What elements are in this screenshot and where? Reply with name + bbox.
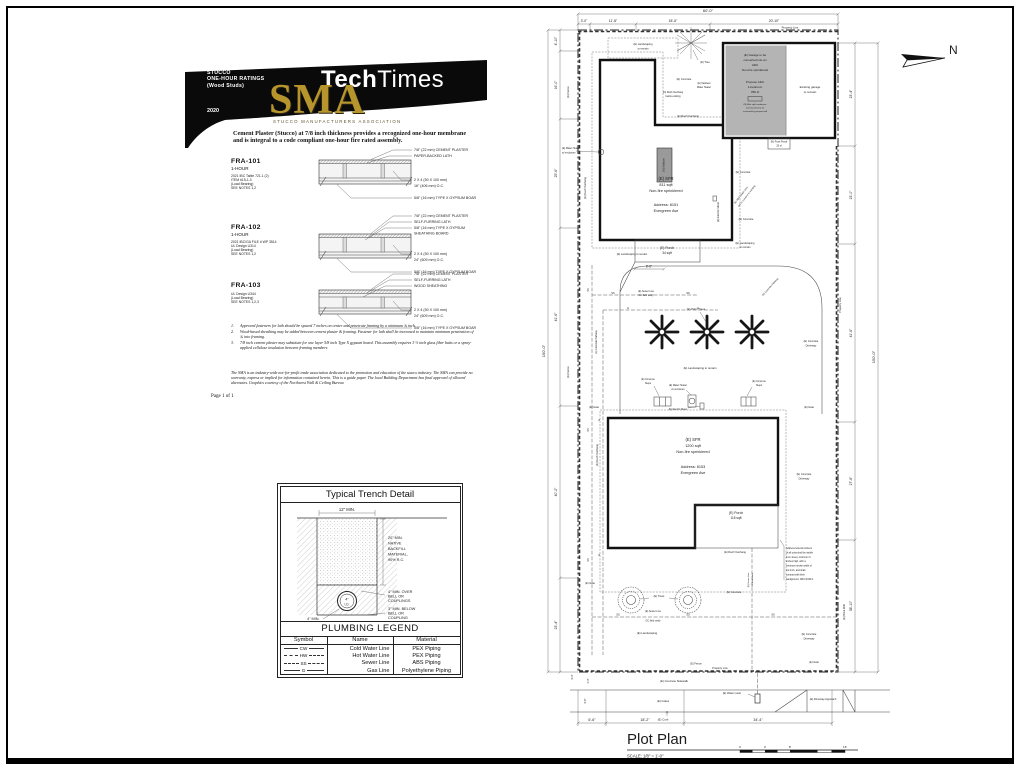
address-note-line: contrast with their — [786, 573, 805, 576]
legend-row-hot-water: HW Hot Water Line PEX Piping — [281, 652, 460, 659]
callout: 7/8" (22 mm) CEMENT PLASTER — [414, 148, 469, 152]
ss-mark: SS — [771, 613, 775, 617]
line-segment — [284, 655, 299, 656]
water-heater-mid-2: w/ enclosure — [671, 388, 685, 391]
stud — [343, 238, 347, 253]
fra-ref: SEE NOTES 1,2,3 — [231, 300, 289, 304]
native-soil-left — [297, 518, 317, 615]
dim-right-1: 23'-4" — [849, 89, 853, 98]
fra-refs: 2021 IBC Table 721.1 (2) ITEM #15-1.3 (L… — [231, 174, 289, 191]
kicker-line2: ONE-HOUR RATINGS — [207, 76, 264, 82]
house-8151-address-1: Address: 8151 — [654, 203, 679, 207]
concrete-label-right-2: (E) Concrete — [739, 217, 754, 221]
palm-trunk-1 — [659, 329, 664, 334]
dim-right-overall: 150'-0" — [871, 350, 876, 363]
legend-header-name: Name — [328, 637, 394, 644]
trench-detail-panel: Typical Trench Detail 4" I.D. 12" MIN. 2… — [277, 483, 463, 678]
existing-garage-label-2: to remain — [804, 90, 817, 94]
address-note-bracket — [780, 540, 784, 580]
intro-line1: Cement Plaster (Stucco) at 7/8 inch thic… — [233, 130, 473, 137]
callout: 7/8" (22 mm) CEMENT PLASTER — [414, 214, 469, 218]
ss-mark: SS — [586, 288, 590, 292]
address-note-line: of all units shall be visible — [786, 551, 814, 554]
fra-rating: 1-HOUR — [231, 232, 289, 237]
note-number: 3. — [231, 341, 240, 350]
house-8153-use: (E) SFR — [685, 437, 700, 442]
plumbing-legend-title: PLUMBING LEGEND — [281, 621, 460, 637]
concrete-driveway-3b: Driveway — [804, 637, 815, 641]
landscaping-label-1: (E) Landscaping — [736, 241, 755, 245]
dim-left-6: 23'-4" — [554, 620, 558, 629]
sewer-note-right-2: GC field verify — [751, 572, 754, 587]
landscaping-line-label-mid: (E) Landscaping to remain — [684, 366, 717, 370]
property-line-label-bottom: Property Line — [712, 666, 728, 670]
backfill-label: BACKFILL — [388, 547, 406, 551]
existing-garage-label-1: Existing garage — [800, 85, 821, 89]
hot-water-line-symbol: HW — [284, 653, 324, 658]
callout: 2 X 4 (50 X 100 mm) — [414, 178, 447, 182]
sewer-line-symbol: SS — [284, 661, 324, 666]
plot-scale-label: SCALE: 1/8" = 1'-0" — [627, 754, 664, 759]
name-cell: Gas Line — [328, 667, 394, 674]
over-bell-label: COUPLINGS — [388, 599, 411, 603]
plot-plan-drawing: 60'-0" 3'-0" 11'-8" 18'-6" 20'-10" 150'-… — [528, 0, 960, 770]
roof-overhang-left: (E) Roof Overhang — [583, 177, 587, 199]
sewer-note-1: (E) Sewer Line — [638, 290, 654, 293]
fra-ref: SEE NOTES 1,2 — [231, 186, 289, 190]
callout: SHEATHING BOARD — [414, 232, 449, 236]
stucco-layer — [319, 234, 411, 238]
dim-left-5: 40'-2" — [554, 487, 558, 496]
roof-overhang-label: (E) Roof Overhang — [677, 114, 699, 118]
gas-mark: G — [627, 306, 629, 310]
mini-split-note-1: (N) Mini split condenser — [744, 103, 767, 106]
line-segment — [309, 655, 324, 656]
water-meter-label: (E) Water meter — [723, 691, 741, 695]
steps-label-right-1: (E) Concrete — [752, 380, 766, 383]
concrete-pathway-diag: (E) Concrete Pathway — [762, 277, 780, 297]
dim-right-4: 27'-6" — [849, 476, 853, 485]
line-segment — [284, 648, 299, 649]
fra-rating: 1-HOUR — [231, 166, 289, 171]
trench-diagram: 4" I.D. 12" MIN. 20" MIN. NATIVE BACKFIL… — [281, 503, 463, 621]
fra-ref: SEE NOTES 1,2 — [231, 252, 289, 256]
roof-overhang-left-8153: (E) Roof Overhang — [595, 444, 599, 466]
line-segment — [307, 670, 324, 671]
house-8151-area: 811 sqft — [659, 183, 673, 187]
fra-103-info: FRA-103 UL Design U344 (Load Bearing) SE… — [231, 282, 289, 305]
dim-left-1: 4'-10" — [554, 36, 558, 45]
concrete-steps-left-symbol — [654, 397, 671, 406]
dim-grass-width: 5'-6" — [584, 698, 587, 703]
dim-left-4: 41'-6" — [554, 312, 558, 321]
backfill-label: 90% R.C. — [388, 558, 404, 562]
water-heater-label-2: w/ enclosure — [562, 152, 576, 155]
sewer-note-bottom-1: (E) Sewer Line — [645, 610, 661, 613]
concrete-bottom-label: (E) Concrete — [727, 590, 742, 594]
line-segment — [284, 663, 299, 664]
callout: 5/8" (16 mm) TYPE X GYPSUM BOARD — [414, 196, 476, 200]
scale-tick-4: 4' — [764, 745, 767, 749]
ss-mark: SS — [686, 613, 690, 617]
dim-top-4: 20'-10" — [769, 19, 780, 23]
over-bell-label: 4" MIN. OVER — [388, 590, 413, 594]
dim-top-3: 18'-6" — [669, 19, 678, 23]
scale-bar-block — [832, 750, 846, 753]
assembly-fra-101: FRA-101 1-HOUR 2021 IBC Table 721.1 (2) … — [231, 144, 479, 208]
concrete-driveway-1a: (E) Concrete — [804, 339, 819, 343]
callout: 24" (609 mm) O.C. — [414, 258, 444, 262]
electric-meter-mid: (E) Electric Meter — [669, 408, 688, 411]
address-note-line: Address letters/numbers — [786, 547, 813, 550]
note-text: 7/8 inch cement plaster may substitute f… — [240, 341, 475, 350]
kicker-line3: (Wood Studs) — [207, 83, 264, 89]
property-line-label-right: Property Line — [838, 297, 842, 313]
material-cell: PEX Piping — [394, 652, 460, 659]
ss-mark: SS — [686, 291, 690, 295]
ss-mark: SS — [586, 558, 590, 562]
symbol-label: G — [302, 668, 306, 673]
porch-8153-label: (E) Porch — [729, 511, 743, 515]
below-bell-label: BELL OR — [388, 611, 404, 615]
name-cell: Hot Water Line — [328, 652, 394, 659]
backfill-zone — [317, 518, 377, 585]
gate-label-mid-right: (E) Gate — [804, 405, 814, 409]
gas-line-symbol: G — [284, 668, 324, 673]
water-meter-leader — [748, 694, 755, 697]
name-cell: Sewer Line — [328, 660, 394, 667]
scale-bar-block — [790, 750, 818, 753]
trench-inner-frame: Typical Trench Detail 4" I.D. 12" MIN. 2… — [280, 486, 461, 676]
backfill-label: NATIVE — [388, 541, 402, 545]
pipe-id-label: I.D. — [344, 602, 349, 606]
backfill-label: MATERIAL, — [388, 552, 408, 556]
dim-right-2: 23'-0" — [849, 190, 853, 199]
line-segment — [308, 663, 323, 664]
dim-top-overall: 60'-0" — [703, 8, 714, 13]
note-text: Wood-based sheathing may be added betwee… — [240, 330, 475, 339]
intro-line2: and is integral to a code compliant one-… — [233, 137, 473, 144]
north-arrow: N — [893, 34, 963, 76]
gate-label-mid-left: (E) Gate — [589, 405, 599, 409]
new-overhang-label-1: (N) Roof Overhang — [663, 91, 684, 94]
fence-label-left-upper: (E) Fence — [566, 86, 570, 98]
fence-label-bottom: (E) Fence — [690, 662, 702, 666]
note-number: 2. — [231, 330, 240, 339]
scale-tick-8: 8' — [789, 745, 792, 749]
house-8153-address-1: Address: 8153 — [681, 465, 706, 469]
sma-logo-subtitle: STUCCO MANUFACTURERS ASSOCIATION — [273, 119, 401, 124]
adu-propose-3: 350 sf — [751, 90, 759, 94]
name-cell: Cold Water Line — [328, 645, 394, 652]
legend-header-symbol: Symbol — [281, 637, 328, 644]
note-2: 2.Wood-based sheathing may be added betw… — [231, 330, 475, 339]
plot-street: (E) Concrete Sidewalk (E) Grass (E) Curb… — [570, 679, 890, 722]
symbol-label: SS — [300, 661, 306, 666]
concrete-driveway-2b: Driveway — [799, 477, 810, 481]
stucco-layer — [319, 290, 411, 294]
house-8153-sprinkler: Non-fire sprinklered — [676, 450, 709, 454]
steps-treads — [660, 397, 666, 406]
note-3: 3.7/8 inch cement plaster may substitute… — [231, 341, 475, 350]
trees-label: (E) Trees — [654, 594, 665, 598]
symbol-cell: G — [281, 667, 328, 674]
adu-propose-2: 1-bedroom — [748, 85, 763, 89]
house-8153-address-2: Evergreen Ave — [681, 471, 706, 475]
address-note-line: inches high, with a — [786, 560, 806, 563]
sma-disclaimer: The SMA is an industry-wide not-for-prof… — [231, 370, 475, 385]
plot-garage-adu: (E) Garage to be converted into an ADU N… — [723, 43, 835, 149]
new-overhang-label-2: below existing — [665, 95, 681, 98]
legend-row-sewer: SS Sewer Line ABS Piping — [281, 660, 460, 667]
porch-8153-area: 115 sqft — [730, 516, 741, 520]
concrete-driveway-2a: (E) Concrete — [797, 472, 812, 476]
property-line-label-top: Property Line — [782, 26, 799, 30]
round-tree-1 — [618, 587, 644, 613]
palm-leader — [700, 312, 706, 322]
dim-left-overall: 150'-0" — [541, 344, 546, 357]
adu-note-3: ADU — [752, 63, 758, 67]
scale-bar-block — [740, 750, 753, 753]
gas-mark: G — [597, 419, 601, 421]
banner-kicker: STUCCO ONE-HOUR RATINGS (Wood Studs) — [207, 70, 264, 89]
note-1: 1.Approved fasteners for lath should be … — [231, 324, 475, 329]
stud — [343, 164, 347, 179]
stud — [381, 297, 385, 308]
page-number: Page 1 of 1 — [211, 394, 234, 399]
material-cell: Polyethylene Piping — [394, 667, 460, 674]
concrete-pathway-left: (E) Concrete Pathway — [595, 330, 598, 354]
water-meter-symbol — [755, 694, 760, 703]
material-cell: PEX Piping — [394, 645, 460, 652]
steps-label-right-2: Steps — [756, 384, 763, 387]
water-heater-mid-1: (E) Water Heater — [669, 384, 687, 387]
callout: 16" (406 mm) O.C. — [414, 184, 444, 188]
cold-water-line-symbol: CW — [284, 646, 324, 651]
porch-width-dim: 8'-6" — [646, 265, 652, 269]
sewer-note-right-1: (E) Sewer Line — [747, 572, 750, 587]
callout: 7/8" (22 mm) CEMENT PLASTER — [414, 272, 469, 276]
callout: PAPER-BACKED LATH — [414, 154, 452, 158]
tankless-label-2: Water Heater — [697, 86, 711, 89]
tree-label: (E) Tree — [700, 60, 710, 64]
below-bell-label: COUPLING — [388, 616, 408, 620]
ss-mark: SS — [586, 428, 590, 432]
scale-tick-0: 0 — [739, 745, 741, 749]
scale-tick-16: 16' — [843, 745, 847, 749]
sewer-note-bottom-2: GC field verify — [645, 620, 661, 623]
palm-trunk-2 — [704, 329, 709, 334]
trench-width-dim: 12" MIN. — [338, 507, 354, 512]
callout: WOOD SHEATHING — [414, 284, 447, 288]
gas-mark: G — [597, 554, 601, 556]
curb-label: (E) Curb — [658, 718, 669, 722]
steps-label-left-1: (E) Concrete — [641, 378, 655, 381]
mini-split-note-3: screened by parapet wall — [743, 110, 768, 113]
house-8151-address-2: Evergreen Ave — [654, 209, 679, 213]
adu-note-1: (E) Garage to be — [744, 53, 767, 57]
sma-logo: SMA — [269, 76, 365, 124]
tree-starburst — [675, 27, 707, 59]
roof-overhang-label-8153: (E) Roof Overhang — [724, 550, 746, 554]
dim-left-2: 16'-0" — [554, 80, 558, 89]
north-label: N — [949, 43, 958, 57]
plumbing-legend-table: Symbol Name Material CW Cold Water Line … — [281, 637, 460, 675]
tree-canopy-inner — [680, 592, 697, 609]
new-addition-label: (N) Addition — [662, 158, 666, 172]
legend-row-cold-water: CW Cold Water Line PEX Piping — [281, 645, 460, 652]
fra-101-info: FRA-101 1-HOUR 2021 IBC Table 721.1 (2) … — [231, 158, 289, 190]
grass-label: (E) Grass — [657, 699, 670, 703]
plot-titleblock: Plot Plan SCALE: 1/8" = 1'-0" 0 4' 8' 16… — [627, 731, 858, 759]
symbol-label: HW — [300, 653, 308, 658]
tree-canopy-inner — [623, 592, 640, 609]
steps-treads-right — [746, 397, 751, 406]
concrete-label: (E) Concrete — [677, 77, 692, 81]
stud — [381, 238, 385, 253]
stud — [343, 297, 347, 308]
porch-8151-label: (E) Porch — [660, 246, 674, 250]
callout: SELF-FURRING LATH — [414, 278, 451, 282]
sma-techtimes-document: TechTimes SMA STUCCO MANUFACTURERS ASSOC… — [185, 58, 487, 408]
water-heater-tank — [689, 398, 695, 404]
tree-canopy — [618, 587, 644, 613]
dim-top-1: 3'-0" — [581, 19, 589, 23]
fra-code: FRA-103 — [231, 282, 289, 289]
masthead-times: Times — [377, 66, 444, 93]
dim-left-3: 25'-6" — [554, 168, 558, 177]
callout: 2 X 4 (50 X 100 mm) — [414, 308, 447, 312]
concrete-label-right: (E) Concrete — [736, 170, 751, 174]
water-heater-label-1: (E) Water Heater — [562, 147, 580, 150]
intro-paragraph: Cement Plaster (Stucco) at 7/8 inch thic… — [233, 130, 473, 144]
banner-year: 2020 — [207, 108, 219, 114]
tree-canopy — [675, 587, 701, 613]
fra-code: FRA-101 — [231, 158, 289, 165]
driveway-approach-label: (E) Driveway Approach — [810, 697, 837, 701]
dim-right-3: 41'-6" — [849, 328, 853, 337]
palm-trunk-3 — [749, 329, 754, 334]
fra-refs: UL Design U344 (Load Bearing) SEE NOTES … — [231, 292, 289, 305]
landscaping-line-label: (E) Landscaping to remain — [617, 252, 648, 256]
note-number: 1. — [231, 324, 240, 329]
electric-meter-label: (E) Electric Meter — [716, 202, 720, 222]
trees-leaders — [640, 598, 678, 599]
electric-meter-box — [700, 403, 704, 409]
fence-label-left-lower: (E) Fence — [566, 366, 570, 378]
symbol-cell: HW — [281, 652, 328, 659]
below-bell-label: 3" MIN. BELOW — [388, 607, 416, 611]
mini-split-note-2: roof mounted to be — [746, 107, 765, 110]
plot-plan-title: Plot Plan — [627, 731, 687, 748]
landscaping-bottom-label: (E) Landscaping — [637, 631, 658, 635]
gas-mark: G — [697, 306, 699, 310]
symbol-cell: CW — [281, 645, 328, 652]
note-text: Approved fasteners for lath should be sp… — [240, 324, 416, 329]
address-note-line: 1/2 inch, and shall — [786, 569, 806, 572]
brick-wall-label: (E) Brick Wall — [842, 604, 846, 620]
front-porch-label: (N) Front Porch — [771, 141, 788, 144]
pathway-loop — [620, 262, 822, 414]
concrete-steps-right-symbol — [741, 397, 756, 406]
tree-core — [627, 596, 636, 605]
house-8151-sprinkler: Non-fire sprinklered — [649, 189, 682, 193]
stud — [381, 164, 385, 179]
tankless-label-1: (E) Tankless — [697, 82, 711, 85]
plot-house-8153: (E) SFR 1200 sqft Non-fire sprinklered A… — [595, 410, 814, 592]
ss-mark: SS — [616, 613, 620, 617]
round-tree-2 — [675, 587, 701, 613]
stucco-layer — [319, 160, 411, 164]
house-8153-area: 1200 sqft — [685, 444, 702, 448]
gate-label-lower-left: (E) Gate — [585, 581, 595, 585]
callout: SELF-FURRING LATH — [414, 220, 451, 224]
address-note-line: background. CRC R319.1 — [786, 578, 814, 581]
symbol-cell: SS — [281, 660, 328, 667]
adu-propose-1: Propose ADU — [746, 80, 764, 84]
sewer-note-2: GC field verify — [638, 294, 654, 297]
adu-note-4: Non-fire sprinklered — [742, 68, 769, 72]
landscaping-top-2: to remain — [638, 47, 649, 51]
legend-header-row: Symbol Name Material — [281, 637, 460, 645]
concrete-driveway-3a: (E) Concrete — [802, 632, 817, 636]
gate-label-lower-right: (E) Gate — [809, 660, 819, 664]
dim-sidewalk-width: 4'-0" — [587, 678, 590, 683]
assembly-notes: 1.Approved fasteners for lath should be … — [231, 324, 475, 352]
callout: 5/8" (16 mm) TYPE X GYPSUM — [414, 226, 465, 230]
dim-bottom-3: 34'-4" — [753, 718, 763, 722]
scale-bar-block — [765, 750, 778, 753]
dim-corner: 6'-0" — [571, 674, 574, 679]
legend-row-gas: G Gas Line Polyethylene Piping — [281, 667, 460, 674]
bottom-min-dim: 4" MIN. — [307, 617, 320, 621]
legend-header-material: Material — [394, 637, 460, 644]
concrete-sidewalk-label: (E) Concrete Sidewalk — [660, 679, 688, 683]
dim-bottom-2: 18'-2" — [640, 718, 650, 722]
driveway-approach-lines — [775, 690, 855, 712]
steps-label-left-2: Steps — [645, 382, 652, 385]
trench-title: Typical Trench Detail — [281, 487, 460, 503]
over-bell-label: BELL OR — [388, 594, 404, 598]
fra-refs: 2021 IBC/GA FILE # WP 3514 UL Design U31… — [231, 240, 289, 257]
fra-code: FRA-102 — [231, 224, 289, 231]
landscaping-top-1: (E) Landscaping — [634, 42, 653, 46]
dim-right-5: 38'-10" — [849, 600, 853, 611]
concrete-driveway-1b: Driveway — [806, 344, 817, 348]
address-note-line: minimum stroke width of — [786, 565, 812, 568]
material-cell: ABS Piping — [394, 660, 460, 667]
fra-102-info: FRA-102 1-HOUR 2021 IBC/GA FILE # WP 351… — [231, 224, 289, 256]
symbol-label: CW — [300, 646, 308, 651]
backfill-label: 20" MIN. — [388, 536, 403, 540]
house-8151-use: (E) SFR — [658, 176, 673, 181]
callout: 24" (609 mm) O.C. — [414, 314, 444, 318]
porch-8151-area: 34 sqft — [662, 251, 672, 255]
ss-mark: SS — [611, 291, 615, 295]
adu-note-2: converted into an — [743, 58, 766, 62]
callout: 2 X 4 (50 X 100 mm) — [414, 252, 447, 256]
line-segment — [309, 648, 324, 649]
line-segment — [284, 670, 301, 671]
front-porch-area: 25 sf — [776, 145, 782, 148]
address-note-line: from street, minimum 3 — [786, 556, 811, 559]
tree-leader — [693, 50, 698, 60]
dim-bottom-1: 6'-6" — [588, 718, 596, 722]
landscaping-label-2: to remain — [740, 245, 751, 249]
tree-core — [684, 596, 693, 605]
dim-top-2: 11'-8" — [609, 19, 618, 23]
fra-101-diagram: 7/8" (22 mm) CEMENT PLASTER PAPER-BACKED… — [289, 144, 476, 204]
